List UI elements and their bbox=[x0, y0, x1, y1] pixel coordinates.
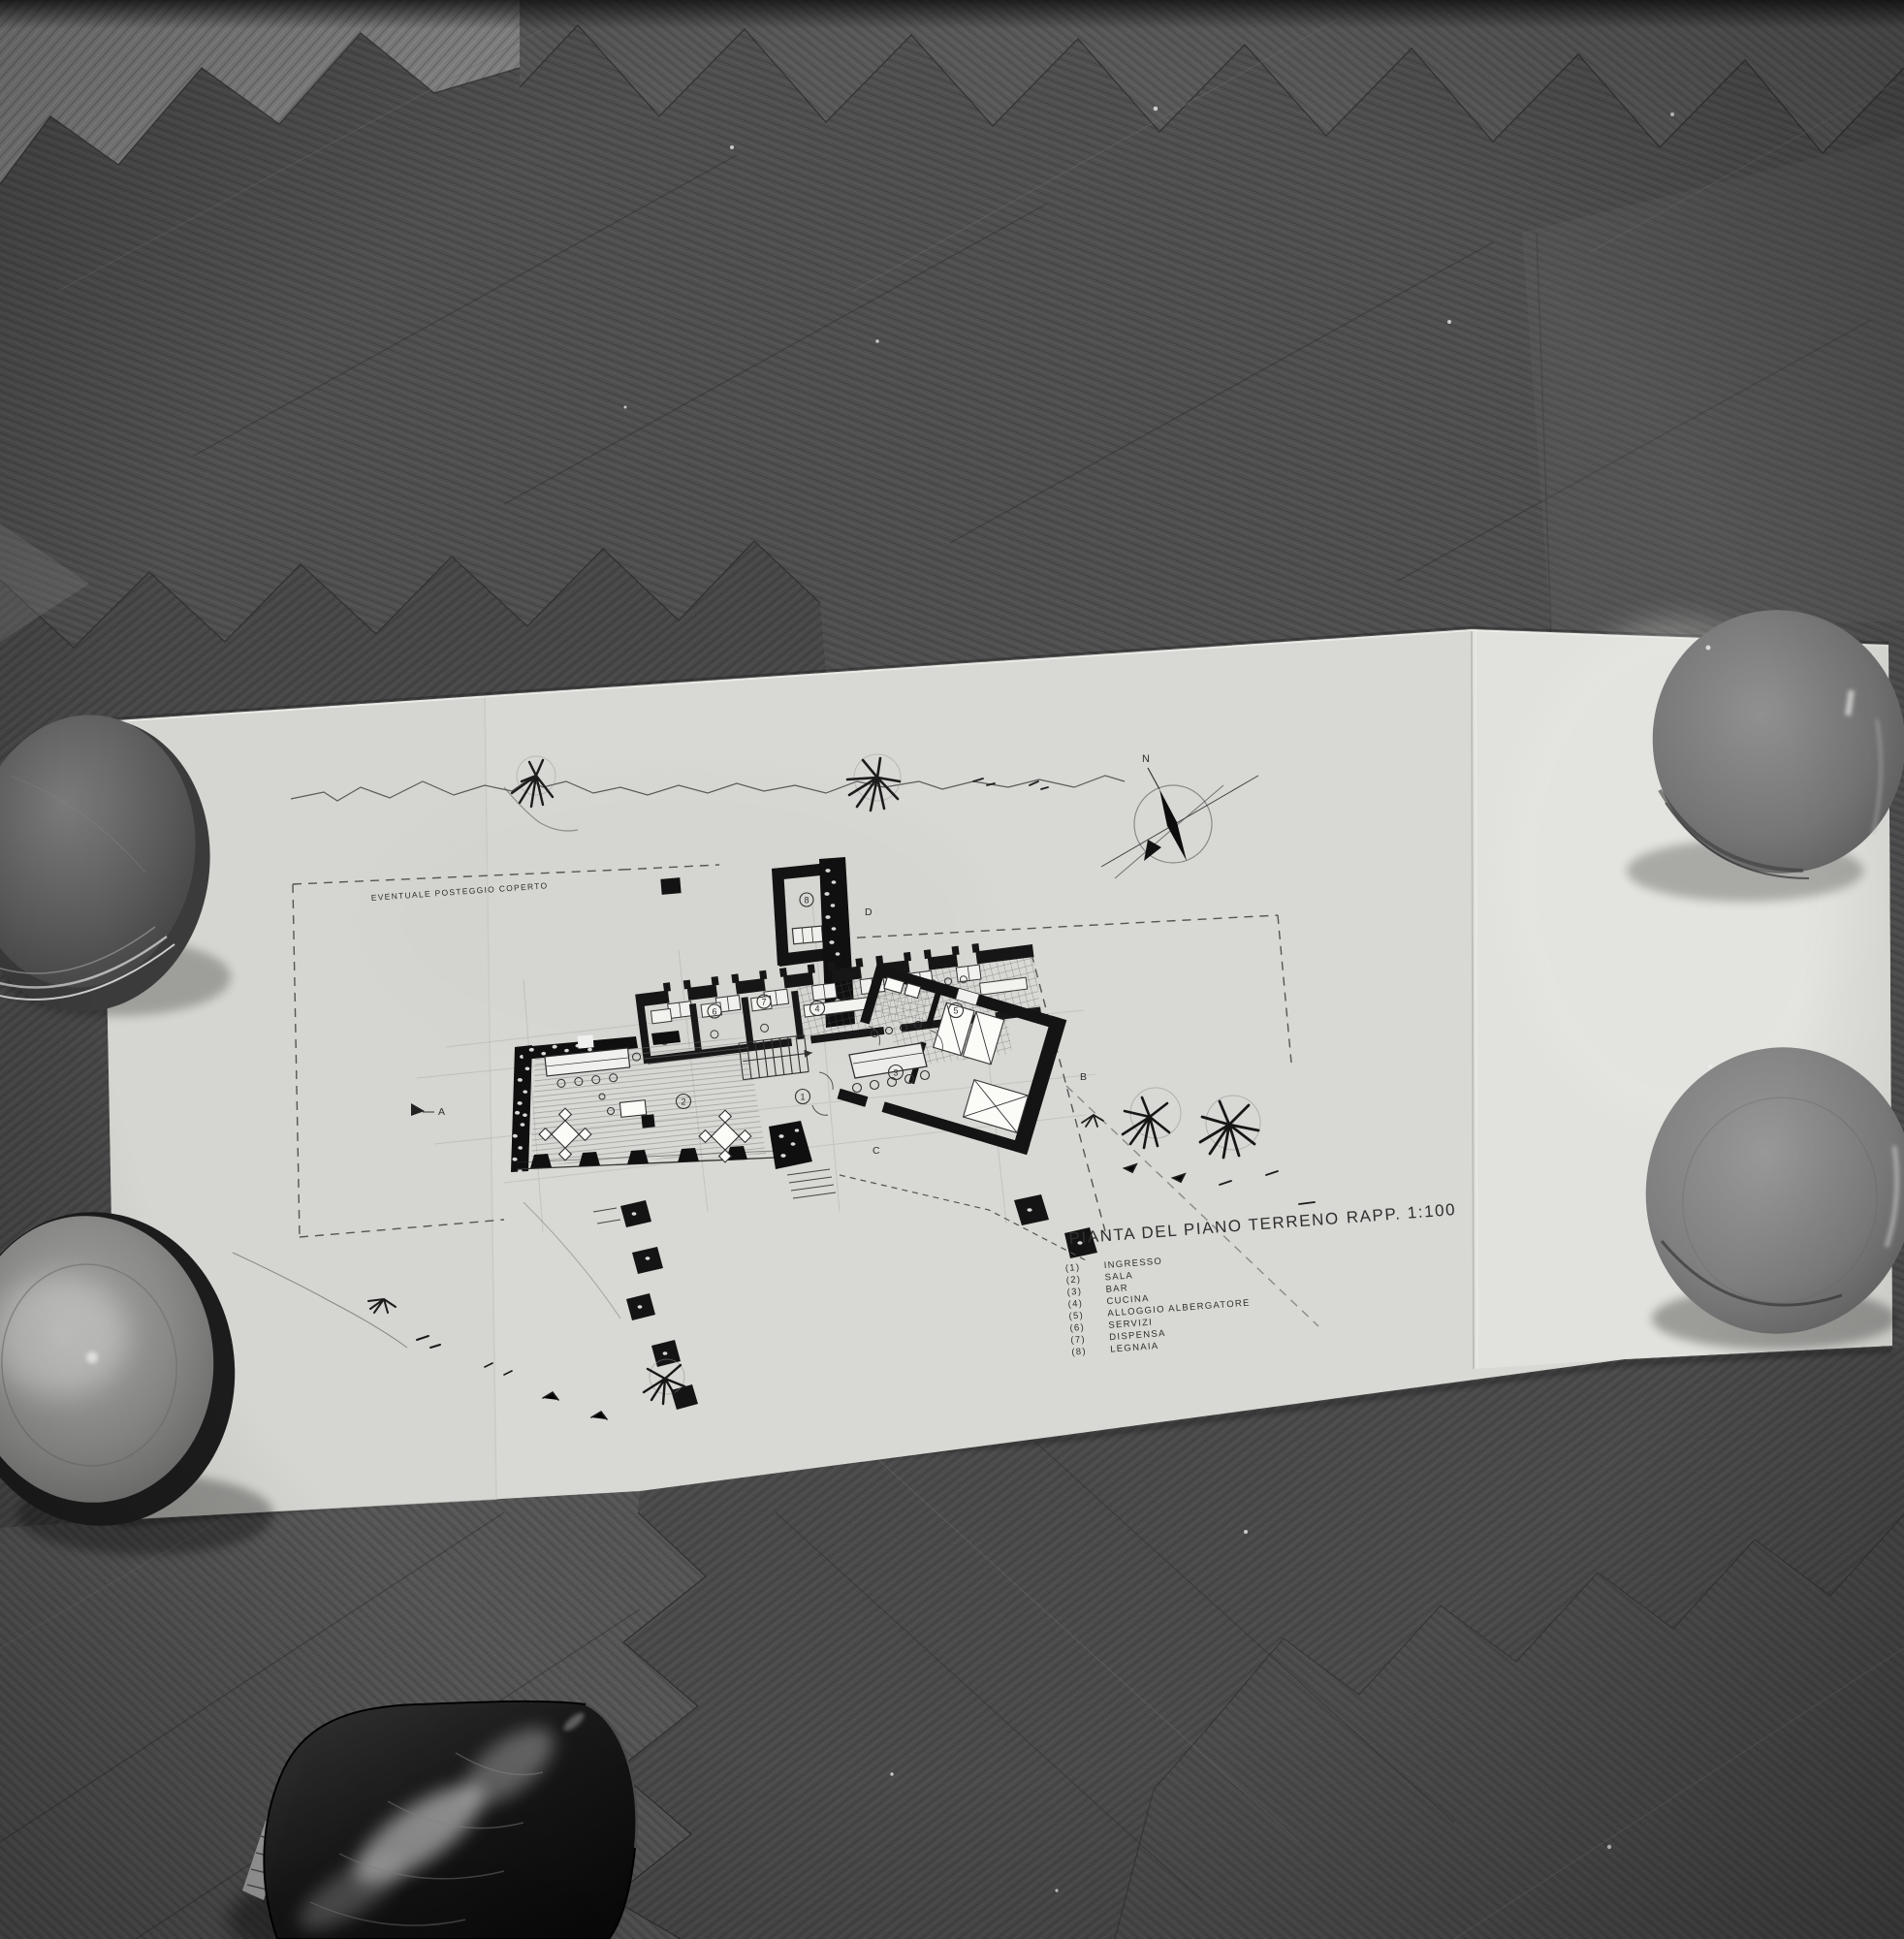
photo-canvas: EVENTUALE POSTEGGIO COPERTO bbox=[0, 0, 1904, 1939]
vignette-overlay bbox=[0, 0, 1904, 1939]
photo-frame: EVENTUALE POSTEGGIO COPERTO bbox=[0, 0, 1904, 1939]
